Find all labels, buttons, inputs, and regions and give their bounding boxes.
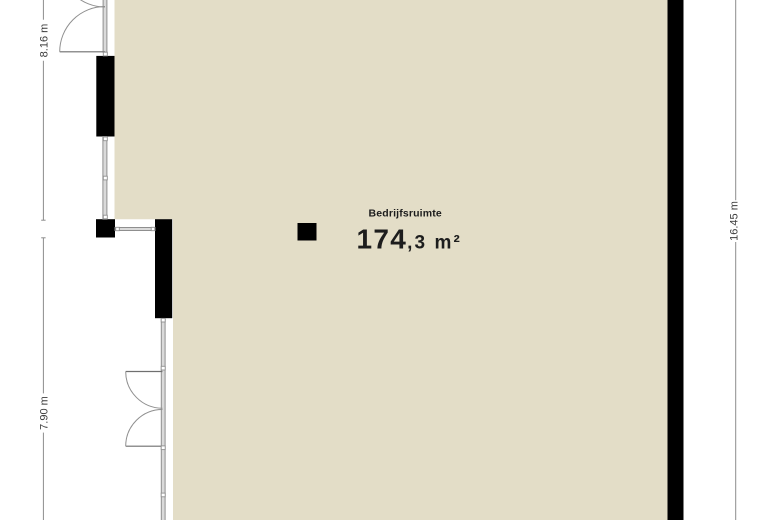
svg-text:16.45 m: 16.45 m (729, 201, 741, 241)
svg-text:Bedrijfsruimte: Bedrijfsruimte (369, 208, 442, 220)
svg-text:8.16 m: 8.16 m (38, 24, 50, 58)
svg-text:7.90 m: 7.90 m (38, 396, 50, 430)
